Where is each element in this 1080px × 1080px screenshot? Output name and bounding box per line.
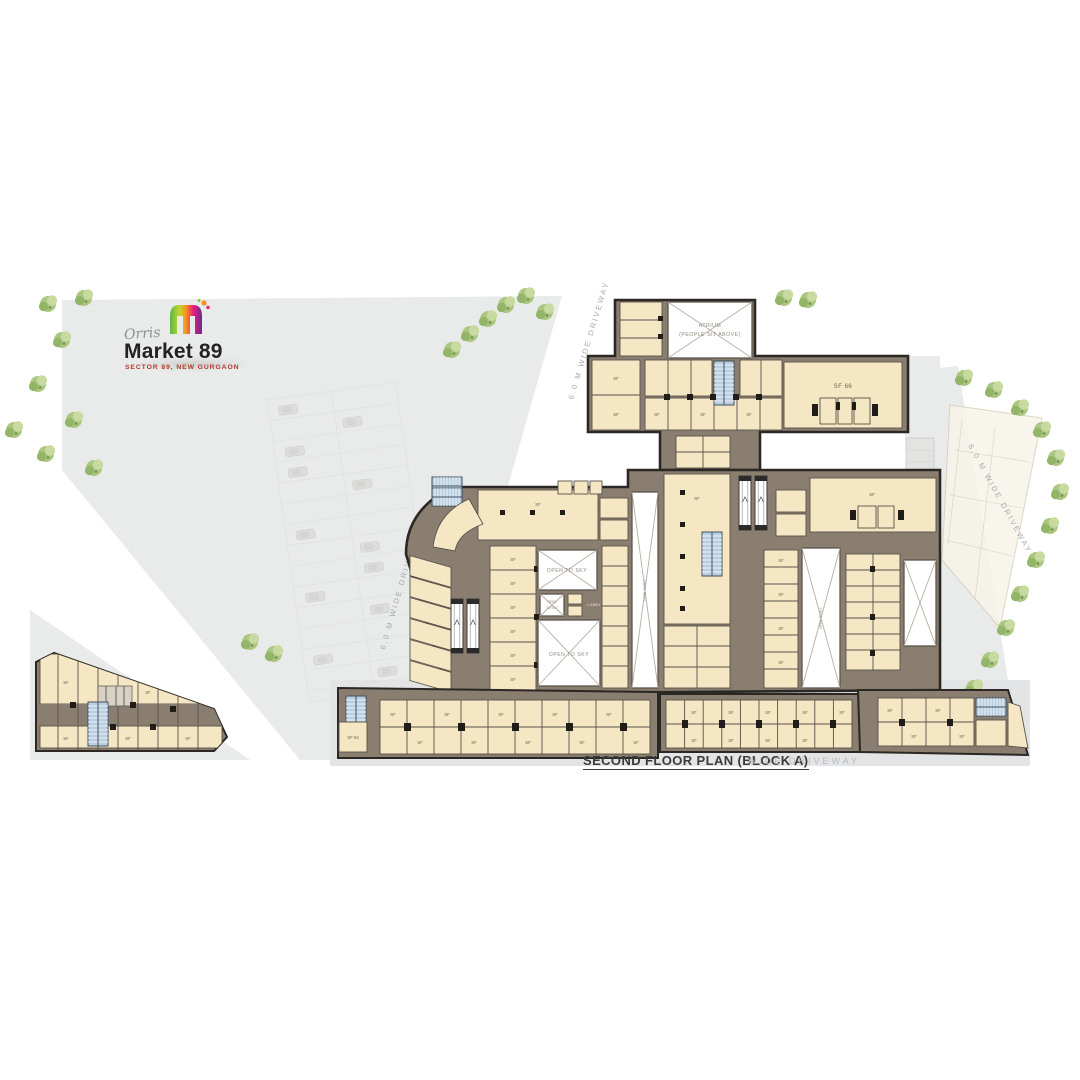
building-left-triangle: SF SF SF SF SF xyxy=(36,650,227,751)
shop-label: SF xyxy=(778,626,784,631)
shop-label: SF xyxy=(778,592,784,597)
open-to-sky-small: OPEN TO SKY xyxy=(540,594,564,616)
open-to-sky-label: OPEN xyxy=(547,600,557,604)
shop-label: SF xyxy=(654,412,660,417)
market89-m-logo-icon xyxy=(164,298,210,338)
shop-label: SF xyxy=(765,738,771,743)
shop-label: SF xyxy=(525,740,531,745)
shop-label: SF xyxy=(535,502,541,507)
open-to-sky-label: OPEN TO SKY xyxy=(549,652,589,658)
lobby-label: LOBBY xyxy=(587,603,601,607)
shop-label: SF xyxy=(613,376,619,381)
shop-label: SF xyxy=(510,629,516,634)
escalator xyxy=(432,488,462,506)
shop-label: SF xyxy=(694,496,700,501)
shop-label: SF xyxy=(510,677,516,682)
shop-label: SF xyxy=(778,660,784,665)
shop-label: SF xyxy=(390,712,396,717)
shop-label: SF xyxy=(613,412,619,417)
building-top-arm: ATRIUM (PEOPLE SIT ABOVE) SF SF SF SF SF… xyxy=(588,300,908,470)
shop-label: SF xyxy=(510,581,516,586)
escalator xyxy=(755,476,767,530)
floor-plan-page: 6.0 M WIDE DRIVEWAY 6.0 M WIDE DRIVEWAY … xyxy=(0,0,1080,1080)
shop-label: SF xyxy=(510,653,516,658)
shop-label: SF xyxy=(839,710,845,715)
shop-label: SF xyxy=(552,712,558,717)
open-to-sky-court xyxy=(904,560,936,646)
anchor-shop: SF xyxy=(810,478,936,532)
shop-label: SF xyxy=(728,710,734,715)
site-plan-svg: 6.0 M WIDE DRIVEWAY 6.0 M WIDE DRIVEWAY … xyxy=(0,0,1080,1080)
open-to-sky-label: TO SKY xyxy=(546,606,559,610)
staircase xyxy=(714,361,734,405)
open-to-sky-label: OPEN TO SKY xyxy=(643,578,647,600)
shop-label: SF xyxy=(125,736,131,741)
staircase xyxy=(88,702,108,746)
atrium-sublabel: (PEOPLE SIT ABOVE) xyxy=(679,332,741,338)
shop-label: SF xyxy=(691,710,697,715)
anchor-shop: SF 66 xyxy=(784,362,902,428)
shop-label: SF xyxy=(498,712,504,717)
shop-label: SF xyxy=(700,412,706,417)
shop-label: SF xyxy=(63,736,69,741)
shop-label: SF xyxy=(444,712,450,717)
shop-label: SF xyxy=(778,558,784,563)
shop-label: SF xyxy=(959,734,965,739)
driveway-label-faint: WIDE DRIVEWAY xyxy=(748,756,860,766)
shop-label: SF xyxy=(746,412,752,417)
shop-label: SF xyxy=(185,736,191,741)
escalator xyxy=(467,599,479,653)
shop-label: SF xyxy=(510,605,516,610)
shop-label: SF xyxy=(911,734,917,739)
shop-label: SF xyxy=(887,708,893,713)
staircase xyxy=(976,698,1006,716)
logo: Orris Market 89 SECTOR 89, NEW GURGAON xyxy=(124,300,274,380)
logo-subtitle: SECTOR 89, NEW GURGAON xyxy=(125,364,239,371)
shop-label: SF xyxy=(802,738,808,743)
open-to-sky-court: OPEN TO SKY xyxy=(538,620,600,686)
escalator xyxy=(739,476,751,530)
shop-label: SF xyxy=(802,710,808,715)
shop-label: SF xyxy=(579,740,585,745)
open-to-sky-court: OPEN TO SKY xyxy=(538,550,597,590)
anchor-shop-label: SF xyxy=(869,492,875,497)
open-to-sky-court: OPEN TO SKY xyxy=(802,548,840,688)
atrium-label: ATRIUM xyxy=(699,323,722,329)
anchor-shop-label: SF 66 xyxy=(834,384,853,390)
shop-label: SF xyxy=(417,740,423,745)
open-to-sky-strip: OPEN TO SKY xyxy=(632,492,658,688)
shop-label: SF xyxy=(145,690,151,695)
shop-label: SF xyxy=(728,738,734,743)
shop-label: SF xyxy=(935,708,941,713)
shop-label: SF xyxy=(471,740,477,745)
shop-label: SF xyxy=(63,680,69,685)
building-bottom-strips: SF 84 SF SF SF SF SF SF SF SF SF SF SF S… xyxy=(338,688,1028,758)
building-main: SF SF SF SF SF SF SF OPEN TO xyxy=(406,470,940,694)
shop-label: SF 84 xyxy=(347,735,359,740)
open-to-sky-label: OPEN TO SKY xyxy=(819,606,823,628)
shop-label: SF xyxy=(606,712,612,717)
open-to-sky-label: OPEN TO SKY xyxy=(547,568,587,574)
shop-label: SF xyxy=(691,738,697,743)
logo-name: Market 89 xyxy=(124,340,223,364)
shop-label: SF xyxy=(633,740,639,745)
shop-label: SF xyxy=(765,710,771,715)
shop-label: SF xyxy=(510,557,516,562)
atrium-open-to-sky: ATRIUM (PEOPLE SIT ABOVE) xyxy=(668,302,752,358)
escalator xyxy=(451,599,463,653)
shop-unit: SF 84 xyxy=(339,722,367,752)
staircase xyxy=(702,532,722,576)
